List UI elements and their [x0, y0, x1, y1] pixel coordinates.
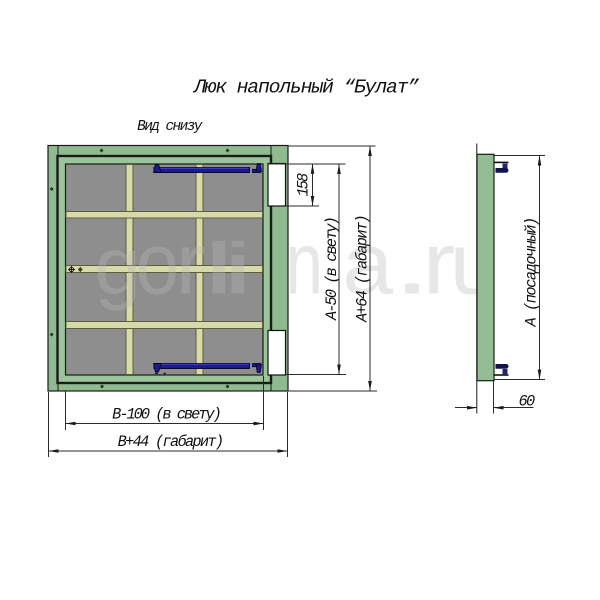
svg-text:А-50 (в свету): А-50 (в свету)	[323, 218, 341, 321]
svg-text:Вид снизу: Вид снизу	[137, 119, 203, 135]
svg-text:r: r	[175, 215, 206, 313]
svg-text:А+64 (габарит): А+64 (габарит)	[354, 216, 372, 323]
svg-text:В+44 (габарит): В+44 (габарит)	[118, 433, 223, 451]
svg-text:В-100 (в свету): В-100 (в свету)	[112, 406, 220, 424]
svg-text:Люк напольный “Булат”: Люк напольный “Булат”	[192, 77, 419, 99]
svg-text:g: g	[95, 222, 142, 311]
svg-text:А (посадочный): А (посадочный)	[523, 218, 541, 327]
svg-text:158: 158	[295, 173, 313, 197]
svg-text:o: o	[136, 214, 179, 312]
svg-text:60: 60	[519, 393, 535, 411]
svg-text:n: n	[286, 214, 324, 313]
svg-text:i: i	[222, 228, 254, 309]
